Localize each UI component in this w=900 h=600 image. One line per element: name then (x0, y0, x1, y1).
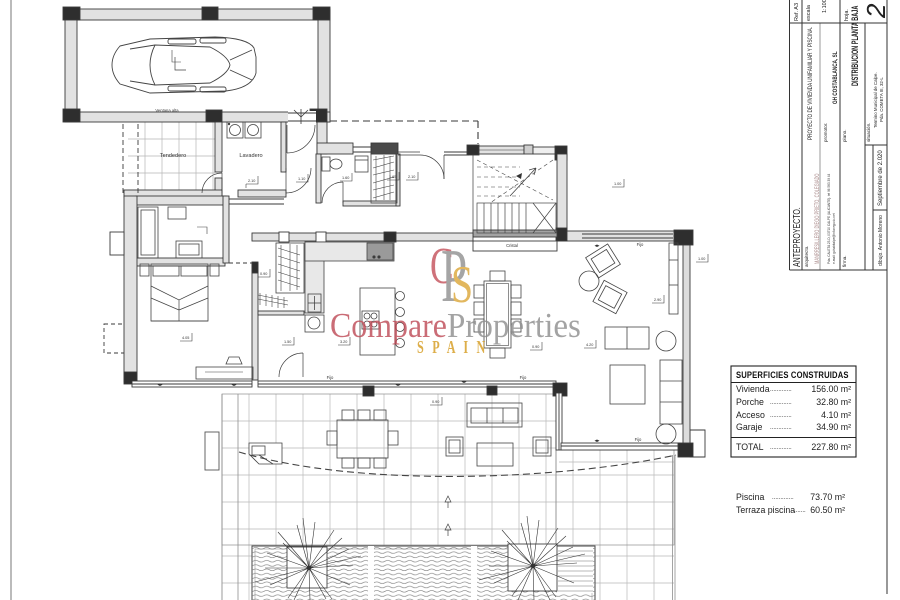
svg-text:◂▸: ◂▸ (594, 243, 600, 249)
svg-text:Vivienda: Vivienda (736, 384, 770, 394)
svg-text:1.00: 1.00 (698, 257, 705, 261)
svg-text:.......: ....... (794, 508, 806, 514)
svg-text:.............: ............. (770, 400, 792, 406)
svg-text:0.90: 0.90 (432, 400, 439, 404)
svg-text:Fijo: Fijo (637, 242, 644, 247)
svg-text:dibujo. Antonio Moreno: dibujo. Antonio Moreno (878, 215, 884, 266)
svg-text:e-mail: gohabitalpe@infonegoc: e-mail: gohabitalpe@infonegocio.net (832, 213, 836, 264)
svg-text:1.60: 1.60 (342, 176, 349, 180)
svg-text:1.10: 1.10 (298, 177, 305, 181)
svg-text:situación.: situación. (866, 123, 871, 142)
svg-text:promotor.: promotor. (823, 123, 828, 142)
svg-text:Septiembre de 2.020: Septiembre de 2.020 (878, 150, 884, 206)
svg-text:.............: ............. (770, 387, 792, 393)
svg-text:GH COSTABLANCA, SL: GH COSTABLANCA, SL (832, 51, 839, 104)
svg-text:Ref. A3: Ref. A3 (794, 3, 800, 21)
svg-text:firma.: firma. (842, 256, 847, 267)
svg-text:MANRRESILLERO DIEGO PRIETO, CO: MANRRESILLERO DIEGO PRIETO, COLEGIADO (814, 173, 821, 264)
svg-text:S: S (451, 256, 473, 315)
svg-text:S P A I N: S P A I N (417, 338, 488, 358)
svg-text:.............: ............. (770, 413, 792, 419)
svg-text:◂▸: ◂▸ (461, 379, 467, 385)
svg-text:60.50 m²: 60.50 m² (810, 505, 845, 515)
svg-text:227.80 m²: 227.80 m² (811, 442, 851, 452)
svg-text:156.00 m²: 156.00 m² (811, 384, 851, 394)
svg-text:.............: ............. (772, 495, 794, 501)
svg-text:TOTAL: TOTAL (736, 442, 764, 452)
svg-text:◂▸: ◂▸ (594, 438, 600, 444)
svg-text:Acceso: Acceso (736, 410, 765, 420)
svg-text:2.10: 2.10 (408, 175, 415, 179)
svg-text:Lavadero: Lavadero (239, 153, 262, 159)
svg-text:escala: escala (806, 4, 812, 21)
svg-text:Piscina: Piscina (736, 492, 764, 502)
svg-text:Garaje: Garaje (736, 422, 763, 432)
svg-text:Pda. CALETA 25-D, 03710 CALPE: Pda. CALETA 25-D, 03710 CALPE (ALICANTE)… (827, 174, 831, 264)
svg-text:Porche: Porche (736, 397, 764, 407)
svg-text:4.20: 4.20 (586, 343, 593, 347)
svg-text:Fijo: Fijo (520, 375, 527, 380)
svg-text:2: 2 (861, 3, 891, 19)
svg-text:ANTEPROYECTO.: ANTEPROYECTO. (791, 207, 803, 267)
svg-text:SUPERFICIES CONSTRUIDAS: SUPERFICIES CONSTRUIDAS (736, 369, 849, 380)
svg-text:2.90: 2.90 (654, 298, 661, 302)
svg-text:arquitecto.: arquitecto. (804, 246, 809, 267)
svg-text:.............: ............. (770, 445, 792, 451)
svg-text:Termino Municipal de Calpe.: Termino Municipal de Calpe. (873, 72, 878, 128)
svg-text:4.10 m²: 4.10 m² (821, 410, 851, 420)
svg-text:Tendedero: Tendedero (160, 153, 186, 159)
svg-text:Ventana alta: Ventana alta (155, 108, 179, 113)
svg-text:DISTRIBUCION PLANTA BAJA: DISTRIBUCION PLANTA BAJA (850, 5, 861, 86)
svg-text:1.50: 1.50 (284, 340, 291, 344)
svg-text:1:100: 1:100 (822, 0, 828, 13)
svg-text:◂▸: ◂▸ (395, 382, 401, 388)
svg-text:Fijo: Fijo (635, 437, 642, 442)
svg-text:2.10: 2.10 (248, 179, 255, 183)
svg-text:32.80 m²: 32.80 m² (816, 397, 851, 407)
svg-text:Fijo: Fijo (327, 375, 334, 380)
svg-text:◂▸: ◂▸ (231, 382, 237, 388)
svg-text:PROYECTO DE VIVIENDA UNIFAM: PROYECTO DE VIVIENDA UNIFAMILIAR Y PISCI… (808, 27, 815, 140)
svg-text:Pda. COMETA III, 32-L: Pda. COMETA III, 32-L (879, 77, 884, 122)
svg-text:0.90: 0.90 (260, 272, 267, 276)
svg-text:1.00: 1.00 (614, 182, 621, 186)
svg-text:3.20: 3.20 (340, 340, 347, 344)
svg-text:.............: ............. (770, 425, 792, 431)
svg-text:◂▸: ◂▸ (157, 382, 163, 388)
svg-text:Terraza piscina: Terraza piscina (736, 505, 795, 515)
svg-text:1.65: 1.65 (389, 175, 396, 179)
svg-text:34.90 m²: 34.90 m² (816, 422, 851, 432)
svg-text:plano.: plano. (842, 129, 847, 142)
svg-text:0.90: 0.90 (532, 345, 539, 349)
svg-text:73.70 m²: 73.70 m² (810, 492, 845, 502)
svg-text:Cristal: Cristal (506, 243, 518, 248)
svg-text:4.05: 4.05 (182, 336, 189, 340)
